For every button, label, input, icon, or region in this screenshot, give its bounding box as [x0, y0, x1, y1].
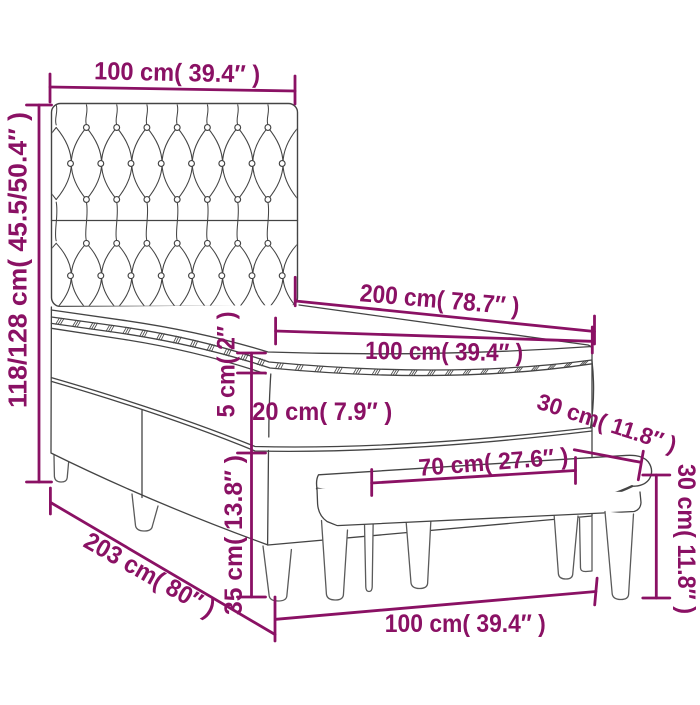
- svg-text:100 cm( 39.4″ ): 100 cm( 39.4″ ): [365, 337, 523, 367]
- svg-text:118/128 cm( 45.5/50.4″ ): 118/128 cm( 45.5/50.4″ ): [3, 112, 33, 408]
- svg-text:100 cm( 39.4″ ): 100 cm( 39.4″ ): [94, 57, 261, 88]
- svg-text:100 cm( 39.4″ ): 100 cm( 39.4″ ): [385, 610, 546, 638]
- svg-text:5 cm( 2″ ): 5 cm( 2″ ): [213, 312, 241, 418]
- svg-text:20 cm( 7.9″ ): 20 cm( 7.9″ ): [252, 398, 392, 426]
- svg-text:35 cm( 13.8″ ): 35 cm( 13.8″ ): [220, 455, 248, 615]
- svg-text:30 cm( 11.8″ ): 30 cm( 11.8″ ): [672, 464, 700, 614]
